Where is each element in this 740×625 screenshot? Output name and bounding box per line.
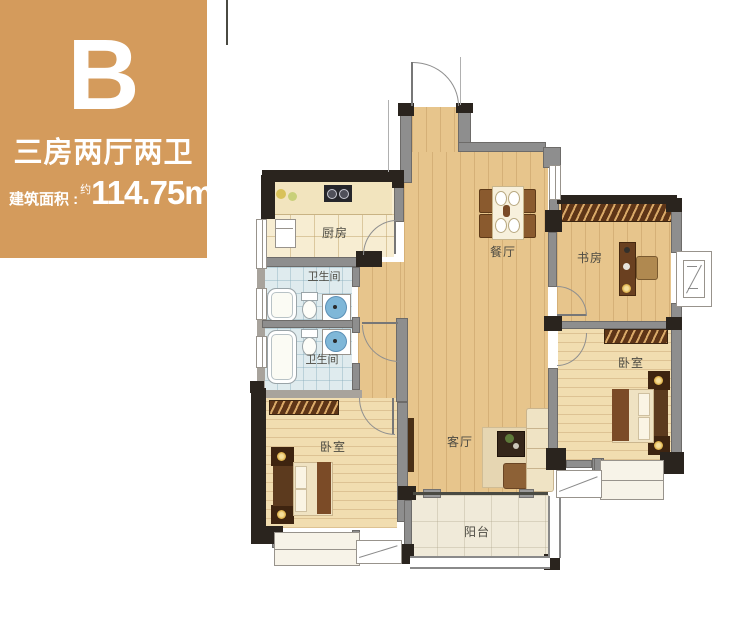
label-bedroom-right: 卧室 bbox=[599, 355, 663, 371]
label-bedroom-left: 卧室 bbox=[301, 439, 365, 455]
wall-dining-right-lower bbox=[548, 232, 557, 287]
stove-burner-right bbox=[339, 189, 349, 199]
entry-door-arc bbox=[413, 62, 459, 106]
coffee-table-plant bbox=[505, 434, 514, 443]
dining-plate-3 bbox=[495, 218, 507, 233]
wall-kitchen-bath-divider bbox=[262, 257, 358, 267]
headboard-bedroom-left bbox=[273, 466, 293, 506]
wall-kitchen-top-right-cap bbox=[392, 170, 404, 188]
ac-study-tick-bottom bbox=[688, 288, 698, 289]
column-study-se bbox=[666, 317, 682, 330]
balcony-door-track bbox=[413, 492, 548, 495]
ottoman bbox=[503, 463, 528, 489]
label-dining: 餐厅 bbox=[471, 244, 535, 260]
label-bathroom-top: 卫生间 bbox=[292, 269, 356, 285]
kitchen-food-item-2 bbox=[288, 192, 297, 201]
kitchen-food-item-1 bbox=[276, 189, 286, 199]
bed-right-pillow-1 bbox=[638, 393, 650, 416]
label-living: 客厅 bbox=[428, 434, 492, 450]
label-study: 书房 bbox=[558, 250, 622, 266]
dining-plate-2 bbox=[508, 191, 520, 206]
dining-plate-1 bbox=[495, 191, 507, 206]
wardrobe-bedroom-right bbox=[604, 329, 668, 344]
wall-bath-exterior-strip bbox=[257, 267, 265, 389]
wall-kitchen-right bbox=[394, 182, 404, 222]
column-study-ne bbox=[666, 198, 682, 212]
wall-bath-right-2 bbox=[352, 317, 360, 333]
wall-bedroom-left-west bbox=[251, 388, 266, 544]
desk-lamp bbox=[622, 284, 631, 293]
bathtub-top bbox=[267, 288, 297, 322]
dining-centerpiece bbox=[503, 205, 510, 217]
lamp-left-2 bbox=[277, 510, 286, 519]
wall-bath-bedroom-divider bbox=[262, 390, 362, 398]
coffee-table-deco bbox=[513, 443, 519, 449]
lamp-right-2 bbox=[654, 441, 663, 450]
floorplan-page: { "panel": { "unit": "B", "title": "三房两厅… bbox=[0, 0, 740, 625]
bay-window-bedroom-right bbox=[600, 460, 664, 500]
wall-study-top bbox=[557, 195, 677, 204]
desk-item-dark bbox=[624, 247, 630, 253]
floorplan: 厨房 卫生间 卫生间 餐厅 书房 卧室 卧室 客厅 阳台 bbox=[0, 0, 740, 625]
column-dining-right bbox=[545, 210, 562, 232]
balcony-left-wall bbox=[404, 500, 412, 546]
wall-bedroom-right-south bbox=[566, 460, 592, 468]
stove-burner-left bbox=[327, 189, 337, 199]
lamp-left-1 bbox=[277, 452, 286, 461]
entry-niche-line-left bbox=[388, 100, 389, 172]
bay-window-bedroom-left bbox=[274, 532, 360, 566]
label-kitchen: 厨房 bbox=[303, 225, 367, 241]
column-study-sw bbox=[544, 316, 562, 331]
fridge-divider-line bbox=[276, 228, 293, 229]
dining-plate-4 bbox=[508, 218, 520, 233]
wall-kitchen-left bbox=[261, 175, 275, 219]
desk-item-white bbox=[623, 263, 630, 270]
window-bath-top-west bbox=[256, 288, 267, 320]
ac-study-tick-top bbox=[687, 266, 697, 267]
balcony-railing-south bbox=[410, 556, 550, 569]
balcony-railing-east bbox=[548, 496, 561, 558]
label-bathroom-bottom: 卫生间 bbox=[290, 352, 354, 368]
sink-bottom-drain bbox=[333, 339, 337, 343]
floor-entry-corridor bbox=[412, 107, 458, 154]
column-bedroom-right-sw bbox=[546, 448, 566, 470]
wall-bath-divider bbox=[262, 320, 356, 328]
bed-right-foot-throw bbox=[612, 389, 629, 441]
bed-right-pillow-2 bbox=[638, 417, 650, 440]
wardrobe-bedroom-left bbox=[269, 400, 339, 415]
fridge bbox=[275, 219, 296, 248]
window-kitchen-west bbox=[256, 219, 267, 269]
bath-hall-door-leaf bbox=[362, 322, 398, 324]
page-edge-line bbox=[226, 0, 228, 45]
window-dining-east bbox=[549, 165, 561, 200]
bed-left-pillow-1 bbox=[295, 466, 307, 489]
lamp-right-1 bbox=[654, 376, 663, 385]
bed-left-pillow-2 bbox=[295, 489, 307, 512]
study-chair bbox=[636, 256, 658, 280]
label-balcony: 阳台 bbox=[445, 524, 509, 540]
wall-dining-top bbox=[458, 142, 546, 152]
bed-left-foot-throw bbox=[317, 462, 331, 514]
wall-bedroom-right-east bbox=[671, 329, 682, 463]
entry-niche-line-right bbox=[460, 57, 461, 105]
sink-top-drain bbox=[333, 305, 337, 309]
ac-platform-bedroom-left bbox=[356, 540, 402, 564]
wall-study-bedroom-divider bbox=[548, 321, 676, 329]
wardrobe-study bbox=[561, 203, 676, 222]
window-bath-bottom-west bbox=[256, 336, 267, 368]
wall-kitchen-top bbox=[262, 170, 404, 182]
wall-study-right-upper bbox=[671, 210, 682, 253]
toilet-top-bowl bbox=[302, 300, 317, 319]
